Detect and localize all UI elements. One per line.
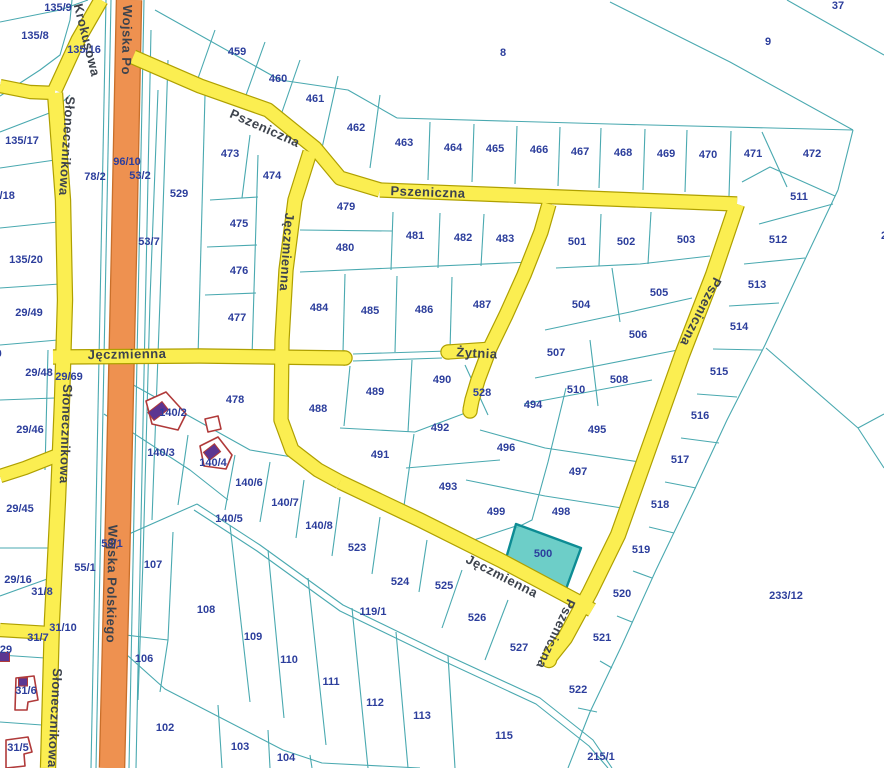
- parcel-label-489: 489: [366, 386, 384, 398]
- parcel-label-31-7: 31/7: [27, 632, 48, 644]
- parcel-label-488: 488: [309, 403, 327, 415]
- parcel-boundary: [207, 245, 257, 247]
- parcel-boundary: [466, 480, 622, 508]
- parcel-label-503: 503: [677, 234, 695, 246]
- street-dead-end-cap: [339, 352, 352, 365]
- parcel-boundary: [713, 349, 762, 350]
- parcel-boundary: [742, 167, 835, 196]
- parcel-boundary: [395, 276, 397, 352]
- parcel-label-482: 482: [454, 232, 472, 244]
- parcel-label-465: 465: [486, 143, 504, 155]
- parcel-boundary: [218, 705, 222, 768]
- parcel-label-517: 517: [671, 454, 689, 466]
- parcel-boundary: [578, 708, 597, 712]
- parcel-boundary: [590, 340, 598, 406]
- street-label-jęczmienna: Jęczmienna: [277, 212, 297, 292]
- parcel-label-498: 498: [552, 506, 570, 518]
- parcel-boundary: [649, 527, 674, 533]
- parcel-boundary: [0, 284, 60, 288]
- parcel-boundary: [404, 434, 414, 506]
- parcel-boundary: [406, 460, 500, 468]
- parcel-label-496: 496: [497, 442, 515, 454]
- parcel-label-104: 104: [277, 752, 296, 764]
- parcel-label-233-12: 233/12: [769, 590, 803, 602]
- parcel-label-29-48: 29/48: [25, 367, 53, 379]
- parcel-boundary: [372, 517, 380, 574]
- parcel-label-472: 472: [803, 148, 821, 160]
- parcel-label-528: 528: [473, 387, 491, 399]
- parcel-label-476: 476: [230, 265, 248, 277]
- parcel-label-511: 511: [790, 191, 808, 203]
- parcel-label-518: 518: [651, 499, 669, 511]
- parcel-boundary: [0, 340, 58, 345]
- parcel-label-510: 510: [567, 384, 585, 396]
- street-label-żytnia: Żytnia: [456, 344, 498, 361]
- parcel-boundary: [268, 730, 270, 768]
- parcel-boundary: [759, 204, 833, 224]
- parcel-label-469: 469: [657, 148, 675, 160]
- parcel-label-505: 505: [650, 287, 668, 299]
- parcel-boundary: [438, 213, 440, 268]
- parcel-label-515: 515: [710, 366, 728, 378]
- parcel-boundary: [744, 258, 805, 264]
- parcel-label-459: 459: [228, 46, 246, 58]
- parcel-label-484: 484: [310, 302, 329, 314]
- parcel-label-140-8: 140/8: [305, 520, 333, 532]
- parcel-boundary: [168, 532, 173, 640]
- parcel-label-460: 460: [269, 73, 287, 85]
- parcel-label-102: 102: [156, 722, 174, 734]
- parcel-label-110: 110: [280, 654, 298, 666]
- parcel-boundary: [681, 438, 719, 443]
- parcel-label-495: 495: [588, 424, 606, 436]
- parcel-label-492: 492: [431, 422, 449, 434]
- parcel-label-9: 9: [765, 36, 771, 48]
- parcel-boundary: [568, 190, 838, 768]
- parcel-label-53-2: 53/2: [129, 170, 150, 182]
- street-label-jęczmienna: Jęczmienna: [88, 346, 167, 362]
- parcel-label-96-10: 96/10: [113, 156, 141, 168]
- parcel-label-37: 37: [832, 0, 844, 12]
- parcel-label-513: 513: [748, 279, 766, 291]
- parcel-boundary: [665, 482, 696, 488]
- parcel-label-508: 508: [610, 374, 628, 386]
- parcel-label-487: 487: [473, 299, 491, 311]
- parcel-boundary: [308, 578, 326, 745]
- parcel-label-31-10: 31/10: [49, 622, 77, 634]
- parcel-boundary: [230, 525, 250, 702]
- parcel-label-111: 111: [322, 676, 339, 688]
- parcel-label-140-3: 140/3: [147, 447, 175, 459]
- parcel-boundary: [515, 126, 517, 184]
- parcel-boundary: [524, 380, 652, 404]
- parcel-boundary: [340, 428, 415, 432]
- parcel-label-107: 107: [144, 559, 162, 571]
- parcel-boundary: [353, 351, 448, 354]
- parcel-boundary: [766, 348, 858, 428]
- parcel-label-467: 467: [571, 146, 589, 158]
- parcel-label-135-17: 135/17: [5, 135, 39, 147]
- parcel-label-464: 464: [444, 142, 463, 154]
- parcel-boundary: [343, 274, 345, 352]
- parcel-label-474: 474: [263, 170, 282, 182]
- parcel-label-29: 29: [0, 644, 12, 656]
- parcel-label-501: 501: [568, 236, 586, 248]
- parcel-label-31-5: 31/5: [7, 742, 28, 754]
- parcel-label-31-6: 31/6: [15, 685, 36, 697]
- parcel-boundary: [610, 2, 853, 130]
- parcel-label-8: 8: [500, 47, 506, 59]
- parcel-label-475: 475: [230, 218, 248, 230]
- parcel-boundary: [344, 366, 350, 426]
- parcel-label-491: 491: [371, 449, 389, 461]
- parcel-boundary: [617, 616, 632, 622]
- parcel-label-506: 506: [629, 329, 647, 341]
- parcel-label-497: 497: [569, 466, 587, 478]
- parcel-boundary: [442, 570, 462, 628]
- parcel-label-78-2: 78/2: [84, 171, 105, 183]
- parcel-label-29-16: 29/16: [4, 574, 32, 586]
- parcel-label-519: 519: [632, 544, 650, 556]
- parcel-label-29-50: 29/50: [0, 348, 2, 360]
- parcel-label-140-6: 140/6: [235, 477, 263, 489]
- parcel-label-215-1: 215/1: [587, 751, 615, 763]
- parcel-label-135-9: 135/9: [44, 2, 72, 14]
- parcel-label-461: 461: [306, 93, 324, 105]
- street-label-wojska-polskiego: Wojska Polskiego: [103, 525, 120, 644]
- parcel-label-502: 502: [617, 236, 635, 248]
- street-label-wojska-po: Wojska Po: [119, 5, 135, 75]
- parcel-label-29-46: 29/46: [16, 424, 44, 436]
- parcel-boundary: [396, 632, 408, 768]
- parcel-label-527: 527: [510, 642, 528, 654]
- parcel-label-29-45: 29/45: [6, 503, 34, 515]
- parcel-boundary: [729, 131, 731, 196]
- parcel-boundary: [685, 130, 687, 192]
- parcel-boundary: [210, 197, 258, 200]
- parcel-boundary: [599, 214, 601, 266]
- parcel-label-514: 514: [730, 321, 749, 333]
- parcel-boundary: [352, 608, 368, 768]
- parcel-label-512: 512: [769, 234, 787, 246]
- parcel-label-473: 473: [221, 148, 239, 160]
- parcel-boundary: [205, 293, 256, 295]
- parcel-label-479: 479: [337, 201, 355, 213]
- parcel-label-483: 483: [496, 233, 514, 245]
- parcel-label-486: 486: [415, 304, 433, 316]
- parcel-label-135-20: 135/20: [9, 254, 43, 266]
- parcel-label-135-18: 135/18: [0, 190, 15, 202]
- street-pszeniczna-east-diagonal: [549, 204, 737, 658]
- parcel-boundary: [300, 262, 531, 272]
- parcel-boundary: [120, 504, 197, 538]
- parcel-label-112: 112: [366, 697, 384, 709]
- parcel-boundary: [481, 214, 484, 266]
- street-dead-end-cap: [464, 405, 477, 418]
- parcel-boundary: [697, 394, 737, 397]
- parcel-label-462: 462: [347, 122, 365, 134]
- parcel-label-113: 113: [413, 710, 431, 722]
- parcel-boundary: [296, 480, 304, 538]
- cadastral-map[interactable]: 135/9135/8135/16135/17135/18135/2029/492…: [0, 0, 884, 768]
- parcel-boundary: [545, 298, 692, 330]
- parcel-label-485: 485: [361, 305, 379, 317]
- parcel-boundary: [178, 435, 188, 505]
- parcel-boundary: [252, 155, 258, 357]
- parcel-boundary: [472, 124, 474, 182]
- parcel-label-494: 494: [524, 399, 543, 411]
- parcel-label-466: 466: [530, 144, 548, 156]
- parcel-boundary: [0, 160, 55, 168]
- parcel-label-516: 516: [691, 410, 709, 422]
- parcel-label-477: 477: [228, 312, 246, 324]
- parcel-boundary: [397, 118, 853, 130]
- parcel-boundary: [428, 122, 430, 180]
- street-west-connector: [0, 86, 55, 93]
- parcel-label-470: 470: [699, 149, 717, 161]
- parcel-label-521: 521: [593, 632, 611, 644]
- parcel-label-140-5: 140/5: [215, 513, 243, 525]
- parcel-label-499: 499: [487, 506, 505, 518]
- parcel-boundary: [0, 222, 58, 228]
- parcel-label-529: 529: [170, 188, 188, 200]
- parcel-boundary: [300, 230, 392, 231]
- parcel-label-31-8: 31/8: [31, 586, 52, 598]
- building-outline: [205, 416, 221, 432]
- parcel-boundary: [391, 212, 393, 270]
- parcel-label-463: 463: [395, 137, 413, 149]
- parcel-label-140-7: 140/7: [271, 497, 299, 509]
- parcel-boundary: [419, 540, 427, 592]
- parcel-label-29-69: 29/69: [55, 371, 83, 383]
- parcel-boundary: [408, 360, 412, 432]
- parcel-label-140-4: 140/4: [199, 457, 227, 469]
- parcel-boundary: [260, 462, 270, 522]
- parcel-boundary: [0, 722, 42, 725]
- parcel-boundary: [643, 129, 645, 190]
- parcel-boundary: [599, 128, 601, 188]
- parcel-label-481: 481: [406, 230, 424, 242]
- parcel-label-109: 109: [244, 631, 262, 643]
- street-label-pszeniczna: Pszeniczna: [390, 183, 466, 201]
- parcel-boundary: [762, 132, 787, 187]
- parcel-boundary: [729, 303, 779, 306]
- parcel-boundary: [556, 256, 710, 268]
- parcel-label-103: 103: [231, 741, 249, 753]
- parcel-label-520: 520: [613, 588, 631, 600]
- parcel-label-108: 108: [197, 604, 215, 616]
- parcel-label-135-8: 135/8: [21, 30, 49, 42]
- parcel-boundary: [450, 277, 452, 350]
- parcel-boundary: [155, 10, 397, 118]
- parcel-label-523: 523: [348, 542, 366, 554]
- parcel-boundary: [198, 95, 205, 357]
- parcel-boundary: [332, 497, 340, 556]
- parcel-label-119-1: 119/1: [360, 606, 387, 618]
- parcel-boundary: [485, 600, 508, 660]
- parcel-boundary: [310, 755, 312, 768]
- parcel-label-525: 525: [435, 580, 453, 592]
- parcel-label-504: 504: [572, 299, 591, 311]
- parcel-label-115: 115: [495, 730, 513, 742]
- parcel-label-490: 490: [433, 374, 451, 386]
- parcel-boundary: [558, 127, 560, 186]
- parcel-label-493: 493: [439, 481, 457, 493]
- parcel-label-522: 522: [569, 684, 587, 696]
- parcel-label-55-1: 55/1: [74, 562, 95, 574]
- parcel-label-53-7: 53/7: [138, 236, 159, 248]
- parcel-boundary: [648, 212, 651, 264]
- parcel-boundary: [448, 656, 455, 768]
- parcel-label-140-2: 140/2: [159, 407, 187, 419]
- map-canvas[interactable]: 135/9135/8135/16135/17135/18135/2029/492…: [0, 0, 884, 768]
- parcel-label-106: 106: [135, 653, 153, 665]
- parcel-boundary: [268, 550, 284, 718]
- parcel-boundary: [600, 661, 612, 668]
- parcel-label-480: 480: [336, 242, 354, 254]
- parcel-boundary: [282, 60, 300, 112]
- parcel-boundary: [838, 130, 853, 190]
- parcel-label-500: 500: [534, 548, 552, 560]
- parcel-label-526: 526: [468, 612, 486, 624]
- parcel-boundary: [242, 135, 250, 198]
- street-dead-end-cap: [442, 346, 455, 359]
- parcel-label-468: 468: [614, 147, 632, 159]
- parcel-boundary: [353, 358, 442, 361]
- parcel-boundary: [633, 571, 652, 578]
- parcel-label-524: 524: [391, 576, 410, 588]
- parcel-boundary: [858, 414, 884, 428]
- parcel-label-29-49: 29/49: [15, 307, 43, 319]
- parcel-boundary: [858, 428, 884, 468]
- parcel-label-507: 507: [547, 347, 565, 359]
- parcel-label-471: 471: [744, 148, 762, 160]
- parcel-label-478: 478: [226, 394, 244, 406]
